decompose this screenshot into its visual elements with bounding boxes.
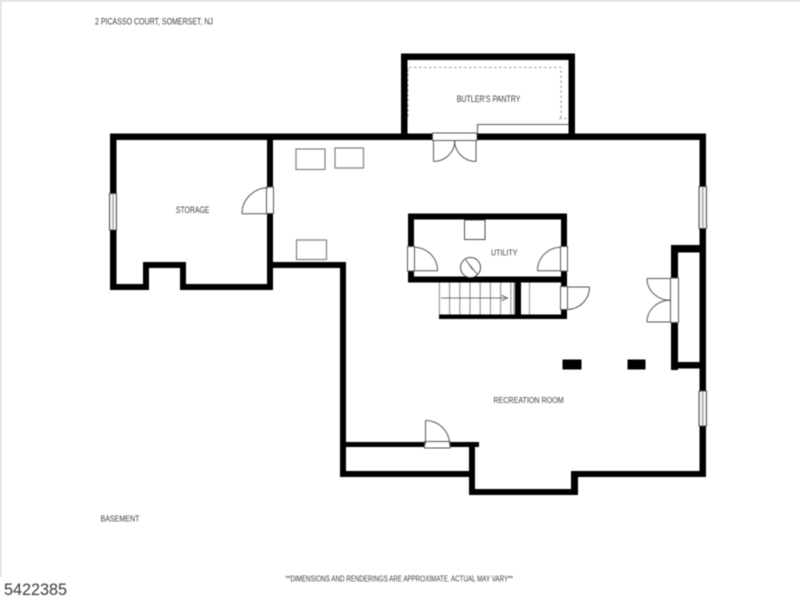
svg-text:5422385: 5422385: [4, 581, 67, 599]
svg-text:BASEMENT: BASEMENT: [101, 514, 140, 524]
svg-text:BUTLER'S PANTRY: BUTLER'S PANTRY: [457, 94, 521, 104]
svg-text:**DIMENSIONS AND RENDERINGS AR: **DIMENSIONS AND RENDERINGS ARE APPROXIM…: [286, 575, 513, 584]
svg-text:STORAGE: STORAGE: [176, 205, 210, 215]
svg-text:2 PICASSO COURT, SOMERSET, NJ: 2 PICASSO COURT, SOMERSET, NJ: [95, 16, 213, 27]
svg-text:UTILITY: UTILITY: [491, 248, 518, 258]
svg-text:RECREATION ROOM: RECREATION ROOM: [493, 395, 563, 405]
